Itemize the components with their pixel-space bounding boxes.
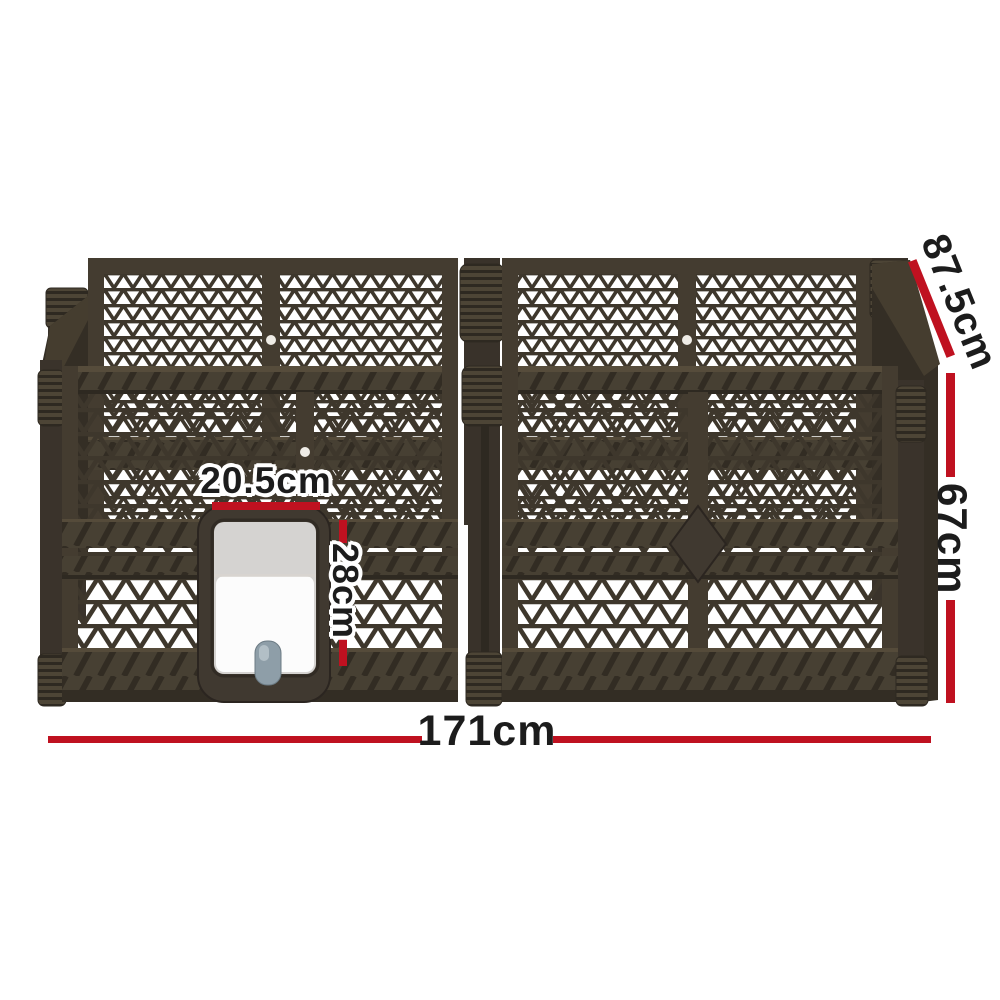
dimension-label-door-width: 20.5cm (186, 462, 346, 499)
front-wall (62, 366, 928, 706)
dimension-line-length-left (48, 736, 422, 743)
front-panel-right (502, 366, 898, 702)
dimension-line-height-top (946, 373, 955, 477)
front-hinge (462, 366, 506, 706)
product-dimension-diagram: 171cm 67cm 87.5cm 20.5cm 28cm (0, 0, 1000, 1000)
dimension-label-height: 67cm (929, 483, 973, 593)
dimension-label-door-height: 28cm (325, 536, 363, 646)
playpen-illustration (0, 0, 1000, 1000)
pet-door (198, 506, 330, 702)
dimension-line-door-width (212, 502, 320, 510)
dimension-line-length-right (553, 736, 931, 743)
front-right-post (896, 380, 928, 706)
door-latch (255, 641, 281, 685)
dimension-line-height-bottom (946, 600, 955, 703)
dimension-label-length: 171cm (407, 710, 567, 753)
